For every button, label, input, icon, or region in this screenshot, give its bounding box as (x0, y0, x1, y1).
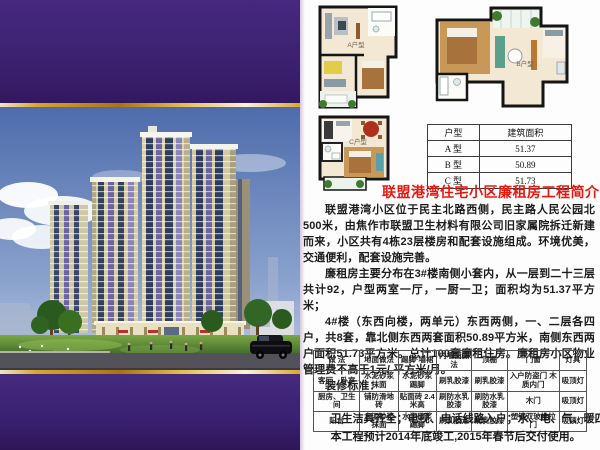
std-cell: 刷乳胶漆 (436, 371, 471, 391)
std-cell: 吸顶灯 (559, 371, 586, 391)
building-photo (0, 107, 300, 370)
table-row: 客厅、卧室 水泥砂浆抹面 水泥砂浆踢脚 刷乳胶漆 刷乳胶漆 入户防盗门 木质内门… (314, 371, 587, 391)
footnote-completion: 本工程预计2014年底竣工,2015年春节后交付使用。 (313, 430, 599, 445)
std-header-lamps: 灯具 (559, 351, 586, 371)
std-cell: 入户防盗门 木质内门 (507, 371, 559, 391)
floor-plan-a-drawing: A户型 (316, 3, 400, 111)
table-row: 厨房、卫生间 铺防滑地砖 贴面砖 2.4 米高 刷防水乳胶漆 刷防水乳胶漆 木门… (314, 391, 587, 411)
intro-paragraph-2: 廉租房主要分布在3#楼南侧小套内，从一层到二十三层共计92，户型两室一厅，一厨一… (303, 266, 595, 314)
std-cell: 贴面砖 2.4 米高 (398, 391, 436, 411)
std-header-ceiling: 顶棚 (472, 351, 507, 371)
std-header-floor: 地面做法 (360, 351, 398, 371)
intro-paragraph-1: 联盟港湾小区位于民主北路西侧，民主路人民公园北500米，由焦作市联盟卫生材料有限… (303, 202, 595, 266)
floor-plan-b-label: B户型 (516, 59, 534, 68)
std-cell: 刷防水乳胶漆 (472, 391, 507, 411)
left-photo-panel (0, 0, 300, 450)
brochure-page: A户型 (0, 0, 600, 450)
footnotes: 卫生洁具齐全；电视、电话线路入户；水、电、气、暖四通。 本工程预计2014年底竣… (313, 412, 599, 448)
unit-table-header-type: 户型 (428, 125, 480, 141)
std-header-doors: 门窗 (507, 351, 559, 371)
floor-plan-b: B户型 (433, 4, 573, 112)
std-header-method: 做 法 (314, 351, 360, 371)
std-cell: 刷乳胶漆 (472, 371, 507, 391)
top-purple-banner (0, 0, 300, 103)
floor-plan-c-label: C户型 (349, 137, 367, 146)
unit-table-header-area: 建筑面积 (479, 125, 571, 141)
table-row: A 型 51.37 (428, 141, 572, 157)
std-cell: 木门 (507, 391, 559, 411)
floor-plan-b-drawing: B户型 (433, 4, 573, 112)
std-header-skirting: 踢脚·墙裙 (398, 351, 436, 371)
std-cell: 吸顶灯 (559, 391, 586, 411)
std-cell: 水泥砂浆抹面 (360, 371, 398, 391)
std-cell: 刷防水乳胶漆 (436, 391, 471, 411)
building-rendering (0, 107, 300, 370)
unit-area-b: 50.89 (479, 157, 571, 173)
unit-type-b: B 型 (428, 157, 480, 173)
table-row: 做 法 地面做法 踢脚·墙裙 内墙面做法 顶棚 门窗 灯具 (314, 351, 587, 371)
footnote-utilities: 卫生洁具齐全；电视、电话线路入户；水、电、气、暖四通。 (313, 412, 599, 427)
floor-plan-a-label: A户型 (347, 40, 365, 49)
std-cell: 厨房、卫生间 (314, 391, 360, 411)
unit-type-a: A 型 (428, 141, 480, 157)
content-panel: A户型 (300, 0, 600, 450)
page-title: 联盟港湾住宅小区廉租房工程简介 (382, 182, 594, 202)
std-cell: 客厅、卧室 (314, 371, 360, 391)
floor-plan-a: A户型 (316, 3, 400, 111)
std-header-innerwall: 内墙面做法 (436, 351, 471, 371)
std-cell: 水泥砂浆踢脚 (398, 371, 436, 391)
bottom-purple-banner (0, 374, 300, 450)
unit-area-table: 户型 建筑面积 A 型 51.37 B 型 50.89 C 型 51.73 (427, 124, 572, 189)
std-cell: 铺防滑地砖 (360, 391, 398, 411)
table-row: B 型 50.89 (428, 157, 572, 173)
unit-area-a: 51.37 (479, 141, 571, 157)
